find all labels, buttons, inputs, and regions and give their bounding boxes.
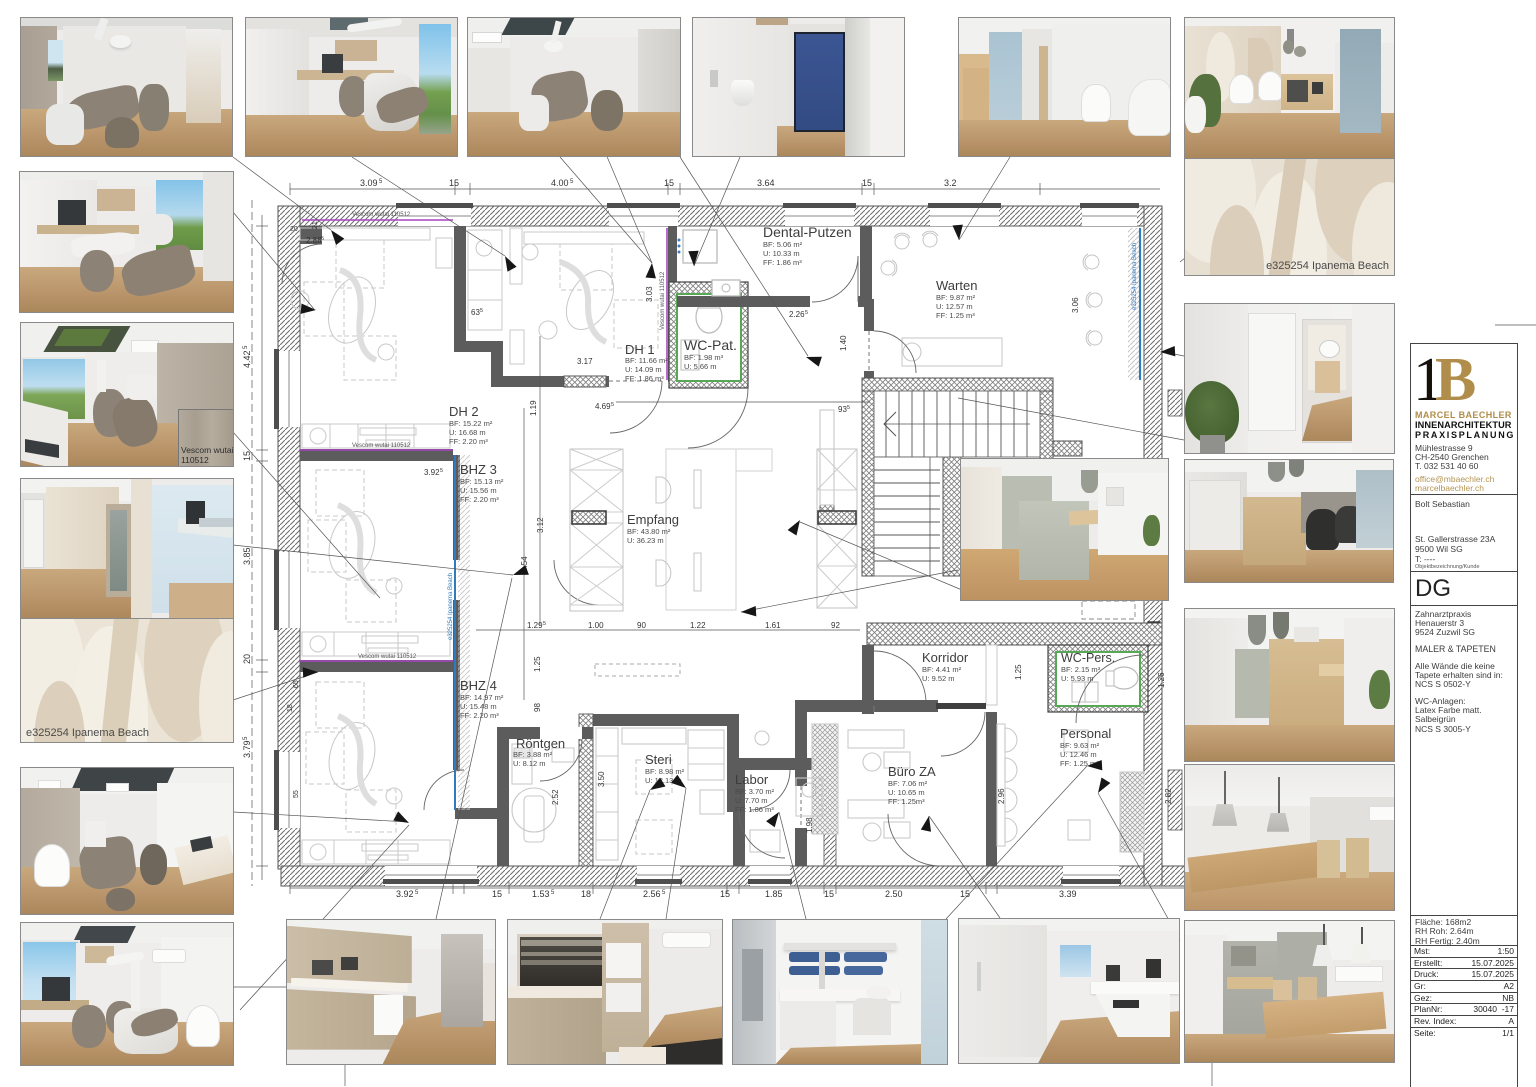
- svg-text:5: 5: [551, 890, 555, 896]
- svg-text:5: 5: [805, 310, 808, 316]
- svg-text:U: 9.52 m: U: 9.52 m: [922, 674, 955, 683]
- svg-text:3.92: 3.92: [396, 889, 414, 899]
- svg-text:2.56: 2.56: [643, 889, 661, 899]
- svg-text:FF: 1.86 m³: FF: 1.86 m³: [763, 258, 802, 267]
- svg-text:1.22: 1.22: [690, 621, 706, 630]
- svg-text:U: 14.09 m: U: 14.09 m: [625, 365, 662, 374]
- svg-text:FF: 2.20 m³: FF: 2.20 m³: [460, 711, 499, 720]
- svg-text:55: 55: [293, 790, 300, 798]
- svg-text:3.06: 3.06: [1071, 297, 1080, 313]
- svg-text:15: 15: [449, 178, 459, 188]
- svg-text:BF: 5.06 m²: BF: 5.06 m²: [763, 240, 803, 249]
- svg-text:15: 15: [720, 889, 730, 899]
- svg-text:BF: 9.87 m²: BF: 9.87 m²: [936, 293, 976, 302]
- svg-text:BF: 3.88 m²: BF: 3.88 m²: [513, 750, 553, 759]
- svg-text:4.42: 4.42: [242, 350, 252, 368]
- svg-text:5: 5: [847, 405, 850, 411]
- svg-text:1.53: 1.53: [532, 889, 550, 899]
- svg-text:Vescom wutai 110512: Vescom wutai 110512: [358, 654, 417, 660]
- svg-text:U: 10.33 m: U: 10.33 m: [763, 249, 800, 258]
- svg-text:21: 21: [312, 221, 319, 229]
- svg-text:98: 98: [533, 703, 542, 712]
- svg-text:Empfang: Empfang: [627, 512, 679, 527]
- svg-text:15: 15: [492, 889, 502, 899]
- svg-text:U: 7.70 m: U: 7.70 m: [735, 796, 768, 805]
- svg-text:5: 5: [243, 345, 249, 349]
- svg-text:FF: 1.86 m³: FF: 1.86 m³: [735, 805, 774, 814]
- svg-text:5: 5: [440, 468, 443, 474]
- svg-text:Korridor: Korridor: [922, 650, 969, 665]
- svg-text:BF: 14.97 m²: BF: 14.97 m²: [460, 693, 504, 702]
- svg-text:BF: 15.13 m²: BF: 15.13 m²: [460, 477, 504, 486]
- svg-text:3.17: 3.17: [577, 357, 593, 366]
- svg-text:2.52: 2.52: [551, 789, 560, 805]
- svg-text:U: 36.23 m: U: 36.23 m: [627, 536, 664, 545]
- svg-text:Labor: Labor: [735, 772, 769, 787]
- svg-text:15: 15: [242, 451, 252, 461]
- svg-text:3.50: 3.50: [597, 771, 606, 787]
- svg-text:BF: 4.41 m²: BF: 4.41 m²: [922, 665, 962, 674]
- svg-text:Röntgen: Röntgen: [516, 736, 565, 751]
- svg-text:U: 5.66 m: U: 5.66 m: [684, 362, 717, 371]
- svg-text:BF: 43.80 m²: BF: 43.80 m²: [627, 527, 671, 536]
- svg-text:BF: 11.66 m²: BF: 11.66 m²: [625, 356, 668, 365]
- svg-text:BF: 15.22 m²: BF: 15.22 m²: [449, 419, 493, 428]
- svg-text:e325254 Ipanema Beach: e325254 Ipanema Beach: [1132, 243, 1138, 310]
- svg-text:5: 5: [243, 736, 249, 740]
- svg-text:1.98: 1.98: [805, 817, 814, 833]
- svg-text:U: 16.68 m: U: 16.68 m: [449, 428, 486, 437]
- svg-text:U: 15.56 m: U: 15.56 m: [460, 486, 497, 495]
- svg-text:18: 18: [581, 889, 591, 899]
- svg-text:U: 12.46 m: U: 12.46 m: [1060, 750, 1097, 759]
- svg-text:18: 18: [287, 704, 294, 712]
- svg-text:90: 90: [637, 621, 646, 630]
- svg-text:Dental-Putzen: Dental-Putzen: [763, 224, 852, 240]
- svg-text:2.26: 2.26: [789, 310, 805, 319]
- svg-text:WC-Pers.: WC-Pers.: [1061, 651, 1115, 665]
- svg-text:BF: 1.98 m³: BF: 1.98 m³: [684, 353, 724, 362]
- svg-text:U: 15.48 m: U: 15.48 m: [460, 702, 497, 711]
- svg-text:5: 5: [543, 621, 546, 627]
- svg-text:5: 5: [570, 179, 574, 185]
- svg-text:1.40: 1.40: [839, 335, 848, 351]
- svg-text:Vescom wutai 110512: Vescom wutai 110512: [660, 271, 666, 330]
- svg-text:BF: 9.63 m²: BF: 9.63 m²: [1060, 741, 1100, 750]
- svg-text:FF: 1.25m³: FF: 1.25m³: [888, 797, 925, 806]
- svg-text:DH 2: DH 2: [449, 404, 479, 419]
- svg-text:15: 15: [824, 889, 834, 899]
- svg-text:Personal: Personal: [1060, 726, 1111, 741]
- svg-text:DH 1: DH 1: [625, 342, 655, 357]
- svg-text:1.25: 1.25: [533, 656, 542, 672]
- svg-text:4.69: 4.69: [595, 402, 611, 411]
- svg-text:65: 65: [293, 680, 300, 688]
- svg-text:BHZ 3: BHZ 3: [460, 462, 497, 477]
- svg-text:FF: 1.25 m³: FF: 1.25 m³: [936, 311, 975, 320]
- svg-text:1.61: 1.61: [765, 621, 781, 630]
- svg-text:U: 10.65 m: U: 10.65 m: [888, 788, 925, 797]
- svg-text:2.88: 2.88: [306, 236, 322, 245]
- svg-text:3.2: 3.2: [944, 178, 957, 188]
- svg-text:4.00: 4.00: [551, 178, 569, 188]
- svg-text:Steri: Steri: [645, 752, 672, 767]
- svg-text:e325254 Ipanema Beach: e325254 Ipanema Beach: [448, 573, 454, 640]
- svg-text:1.26: 1.26: [1157, 672, 1166, 688]
- svg-text:Vescom wutai 110512: Vescom wutai 110512: [352, 443, 411, 449]
- svg-text:FF: 1.86 m³: FF: 1.86 m³: [625, 374, 664, 383]
- svg-text:Büro ZA: Büro ZA: [888, 764, 936, 779]
- svg-text:15: 15: [960, 889, 970, 899]
- svg-text:15: 15: [664, 178, 674, 188]
- svg-text:2.82: 2.82: [1164, 788, 1173, 804]
- svg-text:BHZ 4: BHZ 4: [460, 678, 497, 693]
- svg-text:15: 15: [862, 178, 872, 188]
- svg-text:BF: 2.15 m³: BF: 2.15 m³: [1061, 665, 1101, 674]
- svg-text:5: 5: [379, 179, 383, 185]
- svg-text:BF: 7.06 m²: BF: 7.06 m²: [888, 779, 928, 788]
- svg-text:WC-Pat.: WC-Pat.: [684, 337, 737, 353]
- svg-text:92: 92: [831, 621, 840, 630]
- svg-text:1.00: 1.00: [588, 621, 604, 630]
- svg-text:5: 5: [611, 402, 614, 408]
- svg-text:5: 5: [480, 308, 483, 314]
- svg-text:1.85: 1.85: [765, 889, 783, 899]
- svg-text:BF: 3.70 m²: BF: 3.70 m²: [735, 787, 775, 796]
- svg-text:3.64: 3.64: [757, 178, 775, 188]
- svg-text:3.79: 3.79: [242, 740, 252, 758]
- svg-text:U: 8.12 m: U: 8.12 m: [513, 759, 546, 768]
- svg-text:3.85: 3.85: [242, 547, 252, 565]
- svg-text:1.25: 1.25: [1014, 664, 1023, 680]
- svg-text:Vescom wutai 110512: Vescom wutai 110512: [352, 212, 411, 218]
- svg-text:3.09: 3.09: [360, 178, 378, 188]
- svg-text:FF: 2.20 m³: FF: 2.20 m³: [460, 495, 499, 504]
- svg-text:Warten: Warten: [936, 278, 977, 293]
- svg-text:3.92: 3.92: [424, 468, 440, 477]
- svg-text:3.12: 3.12: [536, 517, 545, 533]
- svg-text:3.03: 3.03: [645, 286, 654, 302]
- svg-text:BF: 8.98 m²: BF: 8.98 m²: [645, 767, 685, 776]
- svg-text:1.19: 1.19: [529, 400, 538, 416]
- svg-text:2.96: 2.96: [997, 788, 1006, 804]
- svg-text:U: 5.93 m: U: 5.93 m: [1061, 674, 1094, 683]
- svg-text:FF: 2.20 m³: FF: 2.20 m³: [449, 437, 488, 446]
- svg-text:5: 5: [662, 890, 666, 896]
- svg-text:2.50: 2.50: [885, 889, 903, 899]
- svg-text:U: 12.57 m: U: 12.57 m: [936, 302, 973, 311]
- svg-text:5: 5: [415, 890, 419, 896]
- svg-text:20: 20: [242, 654, 252, 664]
- svg-text:1.29: 1.29: [527, 621, 543, 630]
- svg-text:3.39: 3.39: [1059, 889, 1077, 899]
- svg-text:20: 20: [290, 226, 298, 233]
- svg-text:5: 5: [321, 236, 324, 242]
